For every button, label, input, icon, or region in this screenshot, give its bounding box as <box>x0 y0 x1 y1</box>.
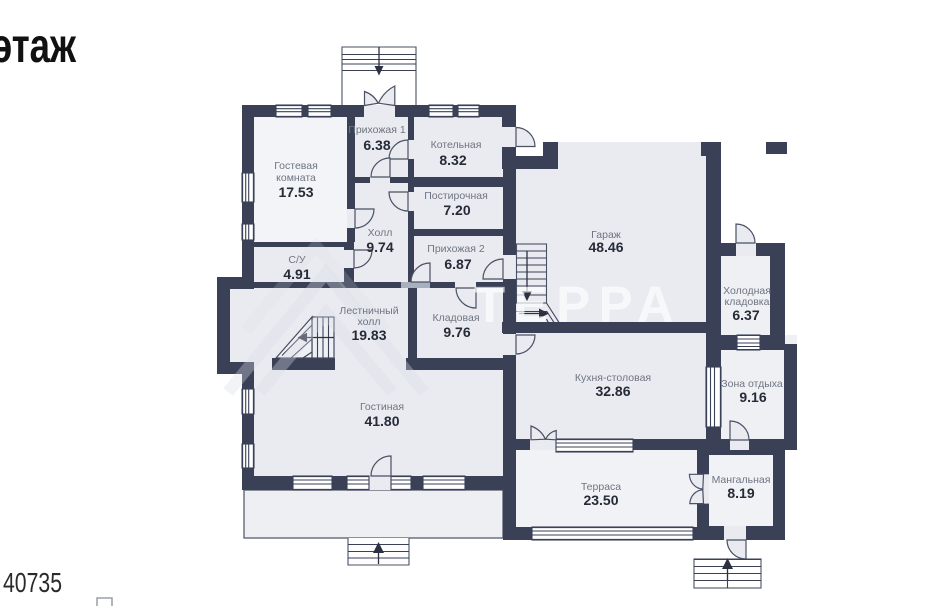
svg-text:Гостиная: Гостиная <box>360 401 404 413</box>
svg-text:19.83: 19.83 <box>351 327 386 343</box>
svg-text:6.37: 6.37 <box>732 307 759 323</box>
svg-text:6.87: 6.87 <box>444 256 471 272</box>
svg-text:комната: комната <box>276 172 316 184</box>
svg-text:9.76: 9.76 <box>443 324 470 340</box>
svg-text:Постирочная: Постирочная <box>424 190 488 202</box>
svg-text:4.91: 4.91 <box>283 266 310 282</box>
svg-text:23.50: 23.50 <box>583 492 618 508</box>
svg-text:40735: 40735 <box>3 567 62 598</box>
svg-text:9.16: 9.16 <box>739 389 766 405</box>
svg-text:7.20: 7.20 <box>443 202 470 218</box>
svg-text:С/У: С/У <box>288 254 306 266</box>
svg-text:32.86: 32.86 <box>595 383 630 399</box>
svg-text:Прихожая 1: Прихожая 1 <box>348 124 406 136</box>
svg-text:8.32: 8.32 <box>439 152 466 168</box>
svg-text:Прихожая 2: Прихожая 2 <box>427 243 485 255</box>
svg-text:41.80: 41.80 <box>364 413 399 429</box>
svg-text:Кладовая: Кладовая <box>432 312 479 324</box>
svg-text:Котельная: Котельная <box>431 139 482 151</box>
svg-text:6.38: 6.38 <box>363 137 390 153</box>
svg-text:Гостевая: Гостевая <box>274 160 318 172</box>
svg-text:9.74: 9.74 <box>366 239 393 255</box>
svg-text:ТЕРРА: ТЕРРА <box>474 276 682 333</box>
svg-text:этаж: этаж <box>0 20 77 73</box>
svg-text:17.53: 17.53 <box>278 184 313 200</box>
svg-text:8.19: 8.19 <box>727 485 754 501</box>
svg-text:Холл: Холл <box>368 227 393 239</box>
svg-text:48.46: 48.46 <box>588 239 623 255</box>
